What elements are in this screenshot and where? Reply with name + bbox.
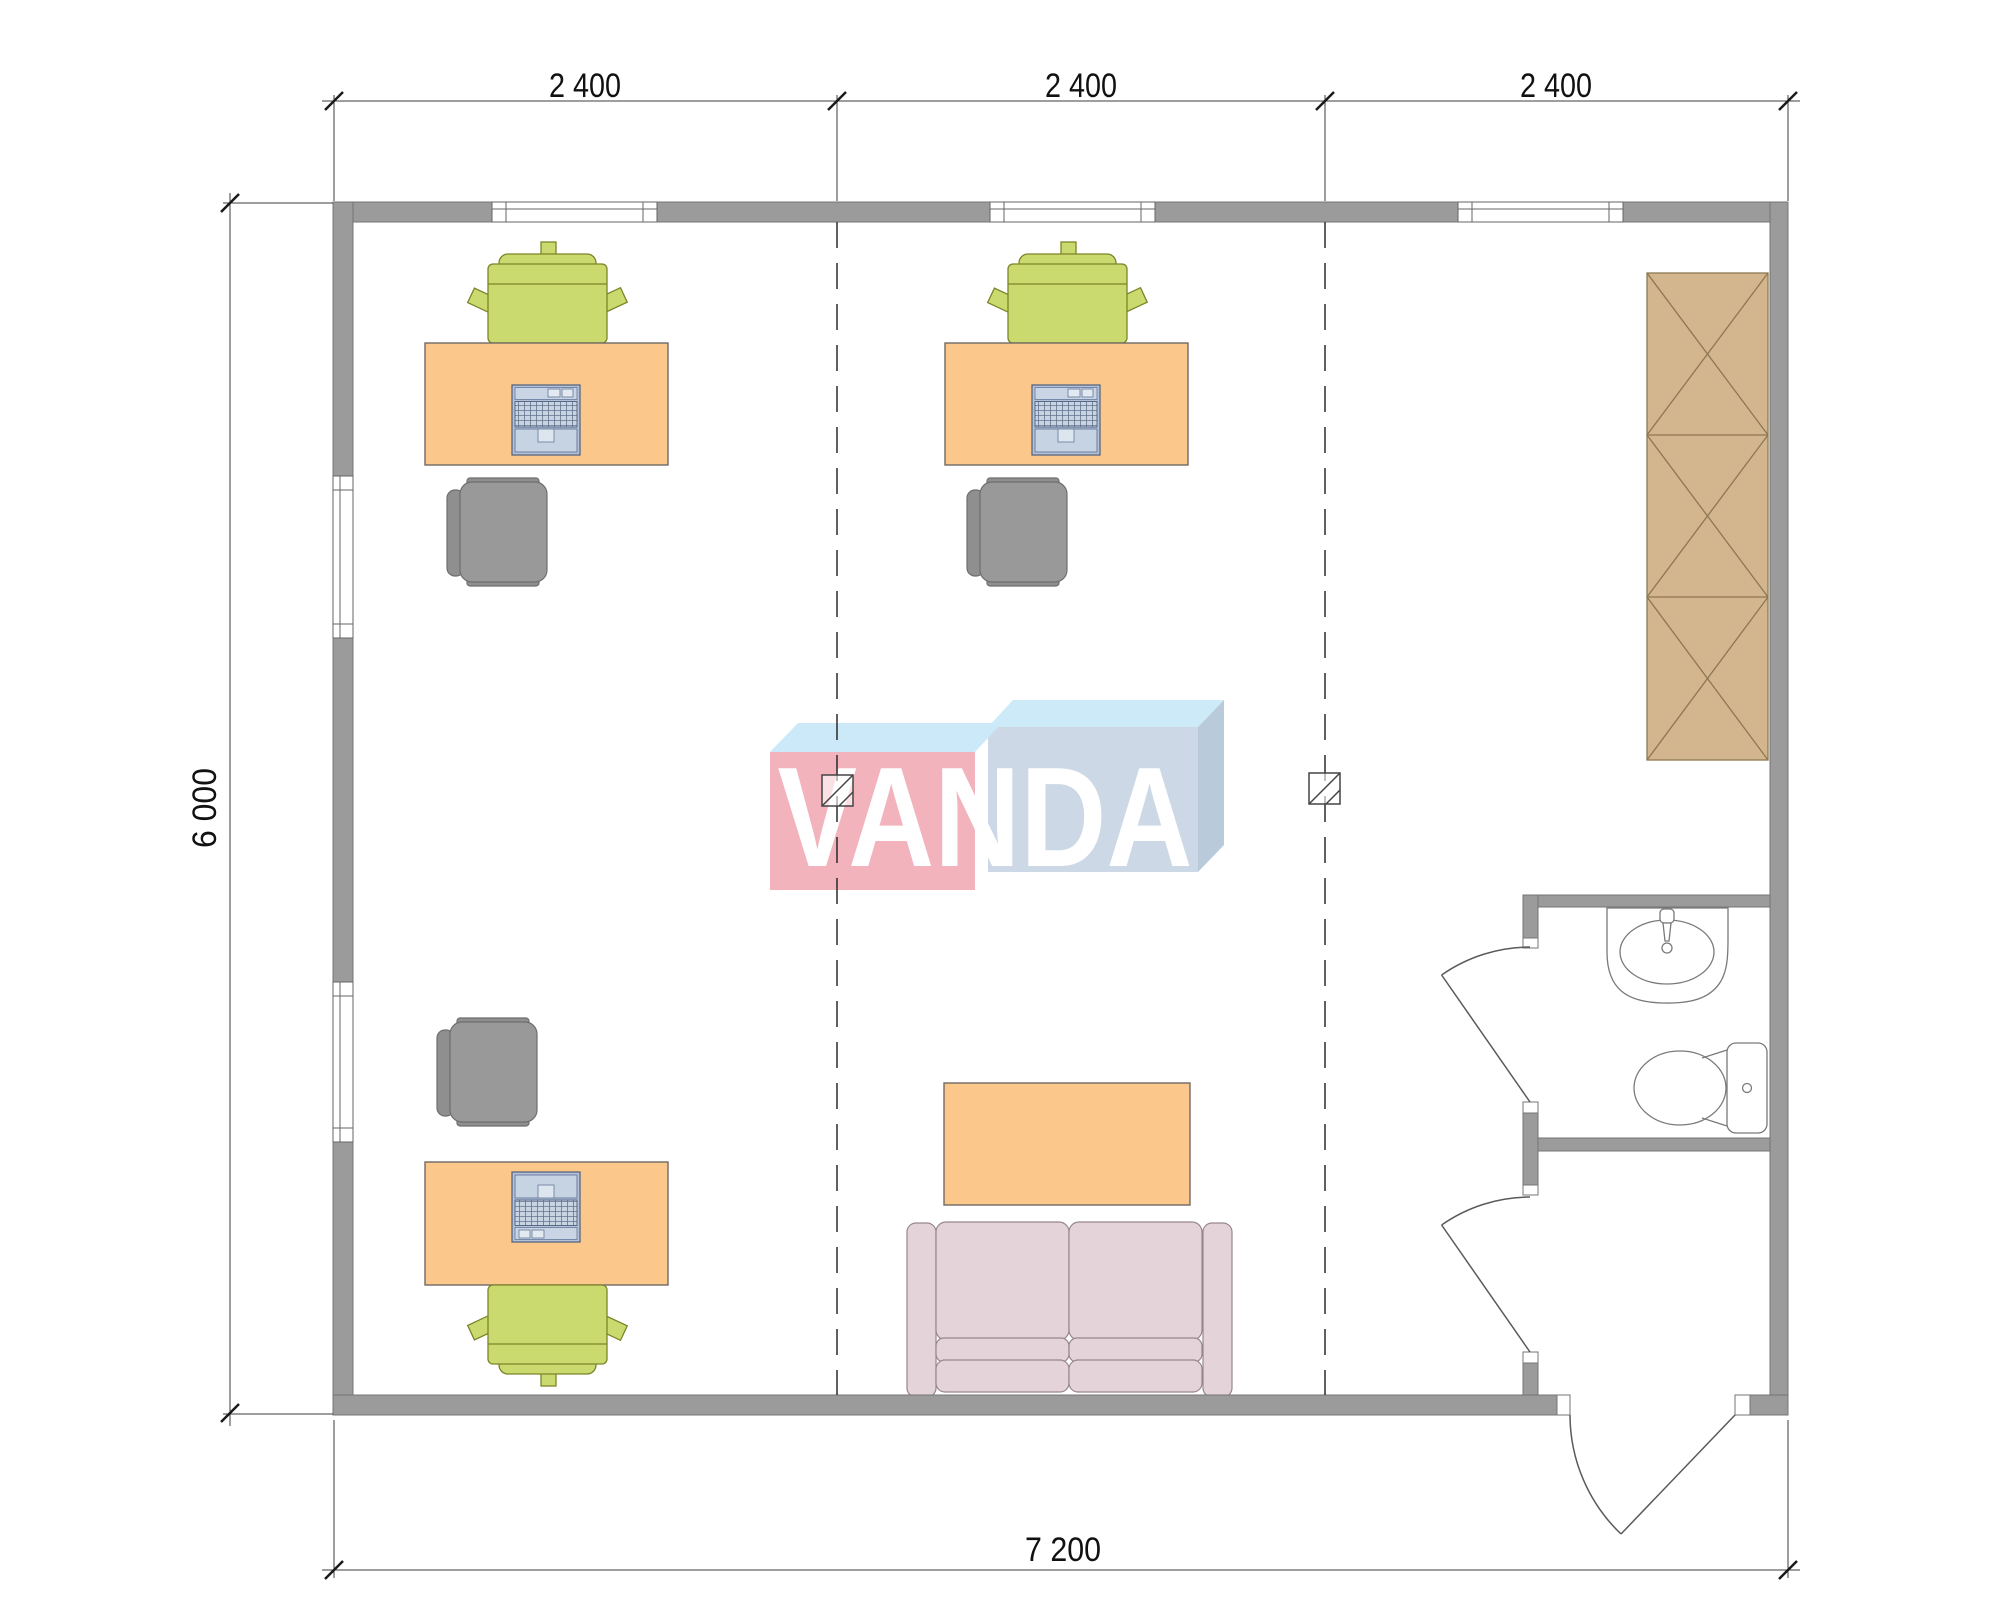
workstation-1 — [425, 242, 668, 586]
laptop — [512, 1172, 580, 1242]
floor-plan-drawing: VANDA — [0, 0, 2000, 1599]
vestibule-door — [1442, 1197, 1530, 1352]
sofa — [907, 1222, 1232, 1397]
window-left-1 — [333, 476, 353, 638]
visitor-chair — [447, 478, 547, 586]
task-chair — [468, 242, 628, 343]
dim-top-1: 2 400 — [549, 67, 621, 105]
floor-plan: VANDA — [0, 0, 2000, 1599]
dim-left: 6 000 — [186, 768, 224, 848]
window-left-2 — [333, 982, 353, 1142]
visitor-chair — [437, 1018, 537, 1126]
window-top-2 — [990, 202, 1155, 222]
bathroom-door — [1442, 947, 1530, 1102]
watermark-text: VANDA — [778, 738, 1193, 897]
entrance-door — [1570, 1415, 1735, 1534]
workstation-2 — [945, 242, 1188, 586]
dim-top-2: 2 400 — [1045, 67, 1117, 105]
workstation-3 — [425, 1018, 668, 1386]
doors — [1442, 947, 1735, 1534]
visitor-chair — [967, 478, 1067, 586]
laptop — [1032, 385, 1100, 455]
door-jambs — [1523, 938, 1750, 1415]
wardrobe — [1647, 273, 1768, 760]
dim-bottom: 7 200 — [1025, 1531, 1101, 1569]
coffee-table — [944, 1083, 1190, 1205]
dim-top-3: 2 400 — [1520, 67, 1592, 105]
task-chair — [988, 242, 1148, 343]
task-chair — [468, 1285, 628, 1386]
laptop — [512, 385, 580, 455]
toilet — [1634, 1043, 1767, 1133]
sink — [1607, 908, 1728, 1003]
ceiling-light-symbol-1 — [822, 775, 853, 806]
ceiling-light-symbol-2 — [1309, 773, 1340, 804]
window-top-1 — [492, 202, 657, 222]
window-top-3 — [1458, 202, 1623, 222]
